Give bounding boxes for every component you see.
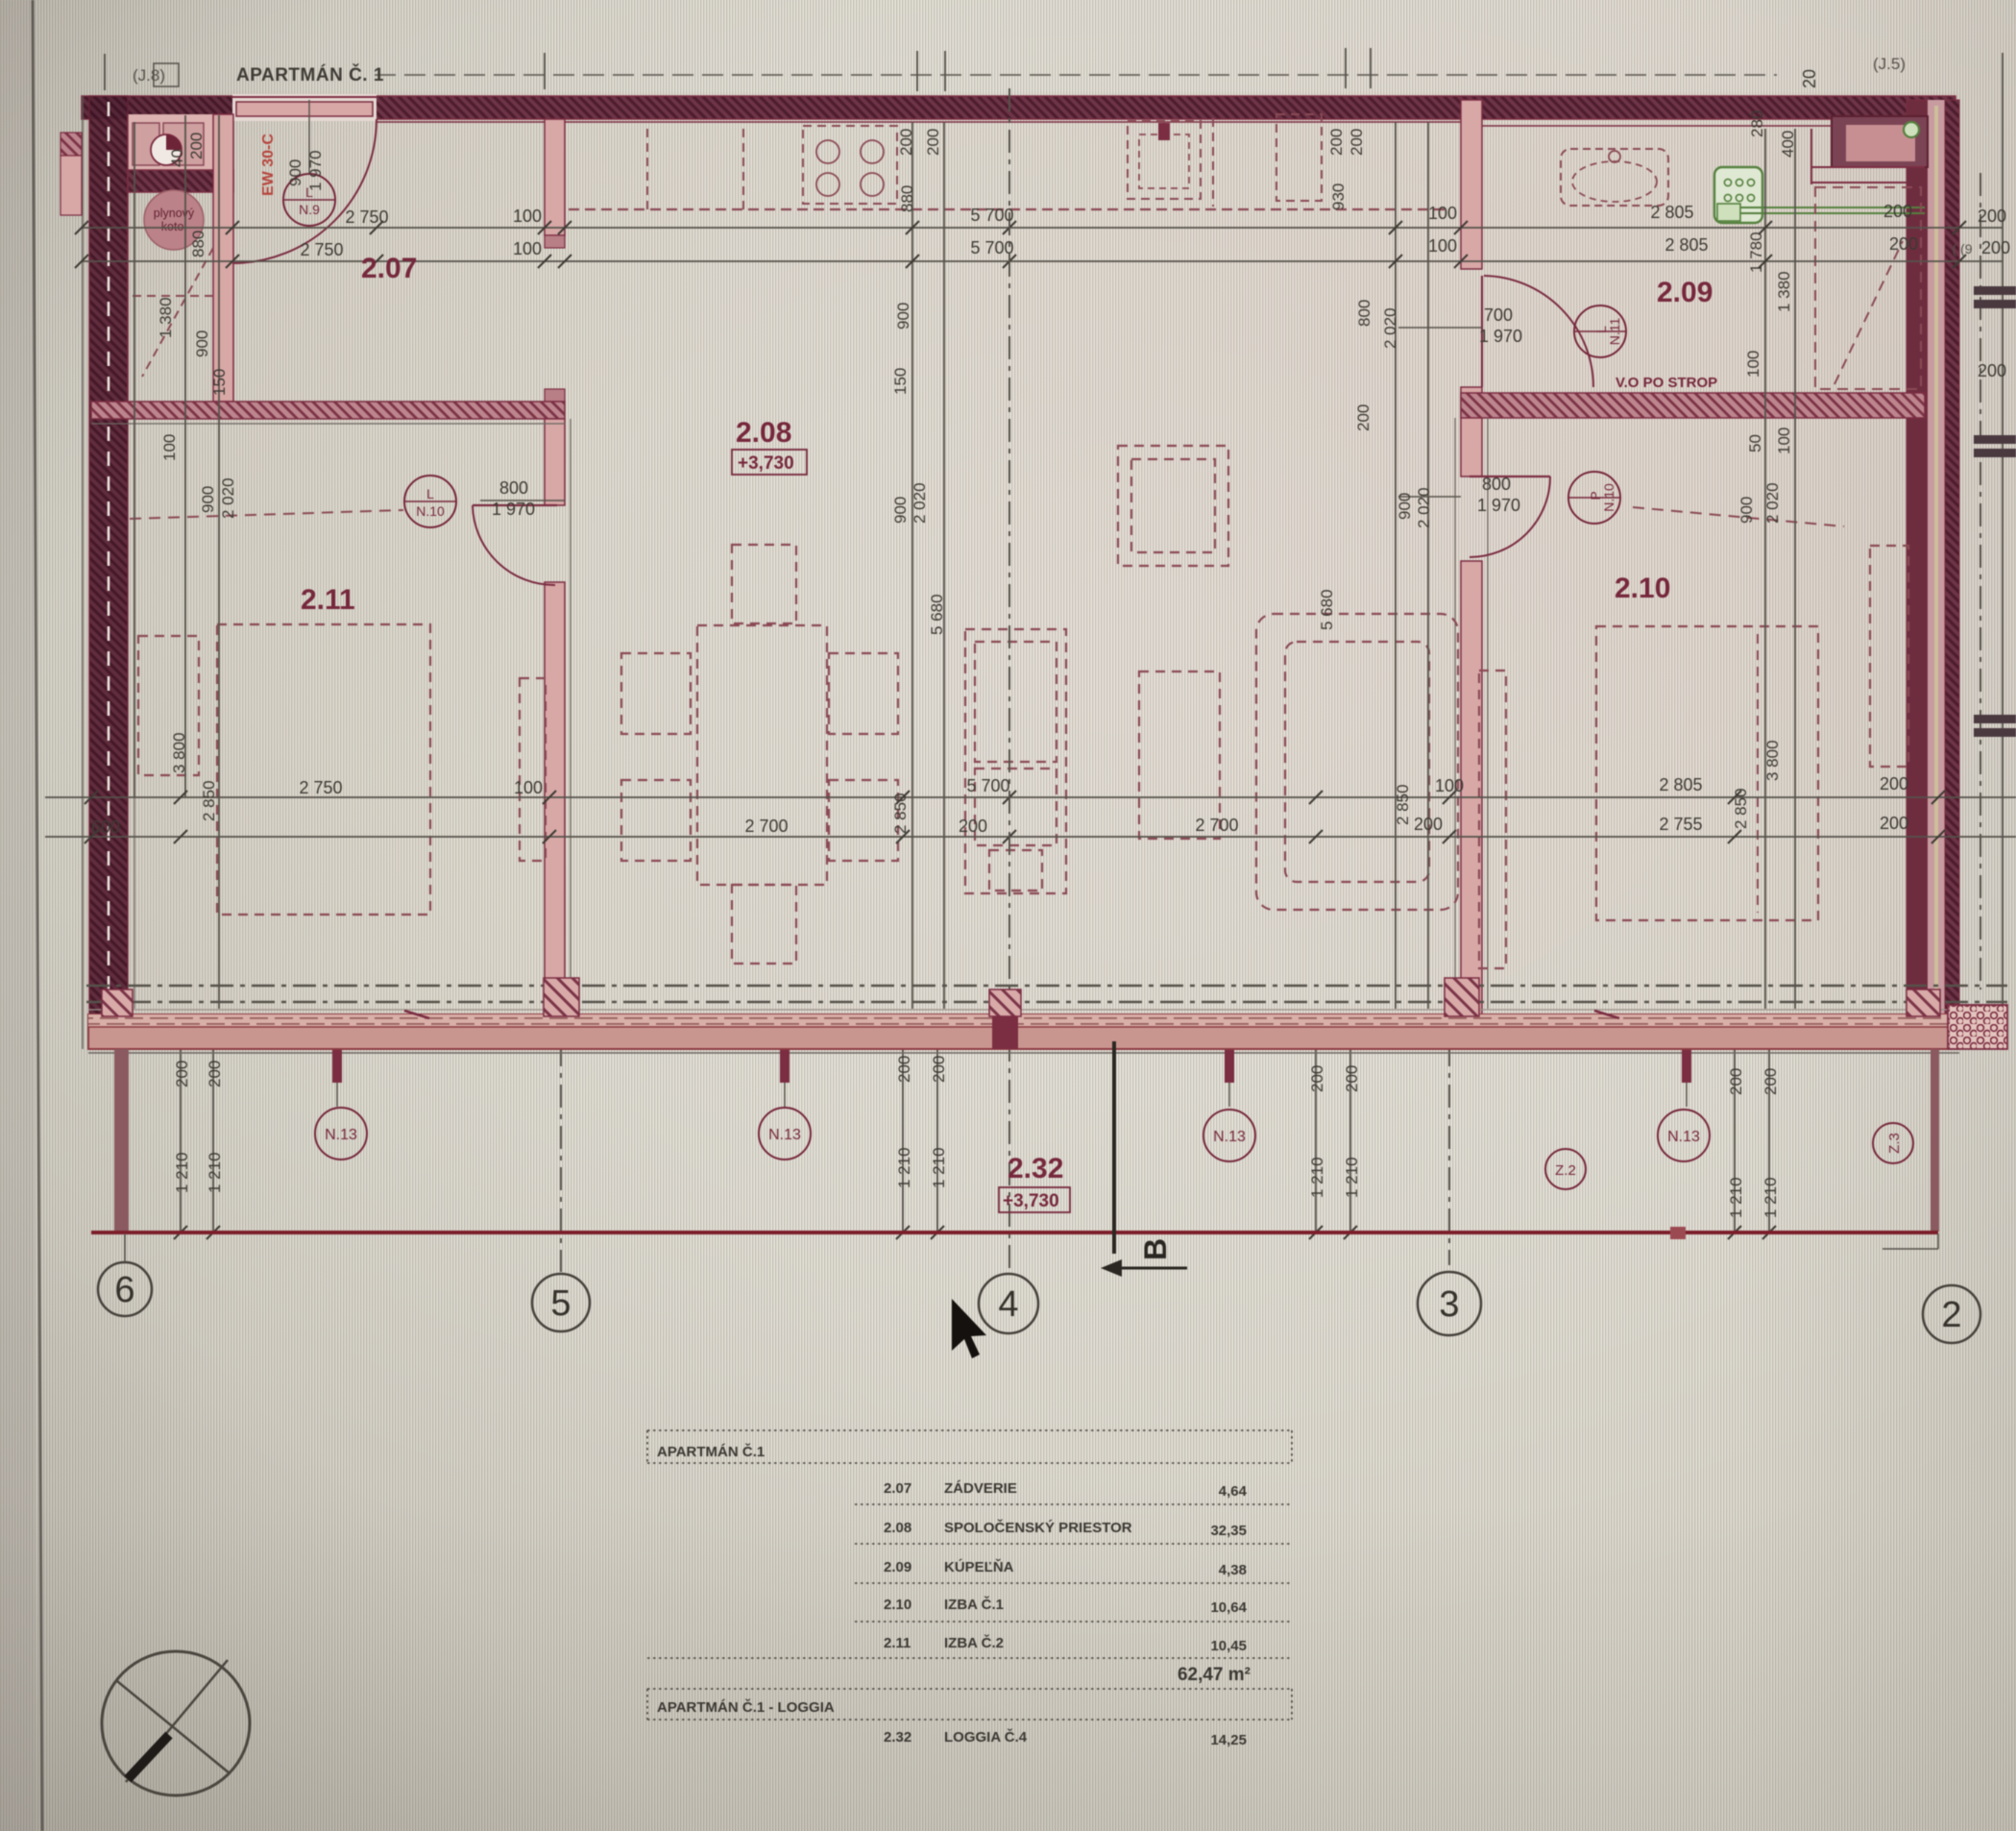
svg-text:200: 200 (1883, 202, 1912, 221)
svg-text:4,38: 4,38 (1219, 1562, 1247, 1578)
svg-text:1 210: 1 210 (206, 1152, 224, 1193)
svg-text:1 970: 1 970 (306, 150, 325, 191)
svg-text:100: 100 (1435, 776, 1464, 795)
svg-text:400: 400 (1779, 131, 1797, 158)
svg-text:2.11: 2.11 (301, 584, 355, 616)
svg-text:800: 800 (1355, 300, 1373, 327)
svg-text:IZBA Č.2: IZBA Č.2 (944, 1634, 1004, 1651)
svg-text:2 850: 2 850 (1732, 788, 1750, 829)
svg-text:10,64: 10,64 (1210, 1599, 1247, 1616)
svg-text:2 750: 2 750 (345, 208, 388, 227)
svg-text:L: L (426, 486, 434, 501)
svg-text:2 020: 2 020 (1381, 307, 1399, 349)
svg-text:880: 880 (898, 185, 916, 212)
svg-text:200: 200 (1327, 129, 1346, 156)
svg-text:plynový: plynový (154, 207, 195, 220)
svg-text:2: 2 (1941, 1295, 1961, 1335)
svg-text:2 020: 2 020 (1415, 487, 1433, 528)
svg-text:kotol: kotol (161, 220, 186, 233)
svg-text:3: 3 (1439, 1284, 1459, 1325)
svg-text:APARTMÁN Č. 1: APARTMÁN Č. 1 (236, 64, 384, 85)
svg-text:2 850: 2 850 (1394, 784, 1412, 825)
svg-text:B: B (1138, 1238, 1173, 1260)
svg-text:200: 200 (1348, 129, 1366, 156)
svg-text:2 805: 2 805 (1659, 775, 1702, 794)
svg-text:2 020: 2 020 (1763, 482, 1782, 524)
svg-text:200: 200 (1727, 1068, 1745, 1095)
svg-text:V.O PO STROP: V.O PO STROP (1615, 375, 1717, 391)
svg-text:2 805: 2 805 (1664, 235, 1708, 255)
svg-text:N.13: N.13 (1667, 1129, 1700, 1145)
svg-text:20: 20 (1800, 69, 1819, 88)
svg-text:200: 200 (1308, 1065, 1326, 1092)
svg-text:1 210: 1 210 (1308, 1157, 1326, 1198)
svg-text:800: 800 (499, 478, 528, 498)
svg-text:200: 200 (173, 1061, 191, 1087)
svg-text:1 380: 1 380 (1775, 271, 1793, 312)
svg-text:1 970: 1 970 (1479, 327, 1522, 346)
svg-text:N.13: N.13 (325, 1127, 357, 1143)
svg-text:50: 50 (1746, 434, 1764, 452)
svg-text:100: 100 (1428, 204, 1457, 223)
svg-text:1 210: 1 210 (895, 1147, 913, 1188)
svg-text:+3,730: +3,730 (1003, 1191, 1059, 1211)
svg-text:900: 900 (1396, 493, 1414, 520)
svg-text:10,45: 10,45 (1210, 1638, 1247, 1654)
svg-text:930: 930 (1329, 183, 1348, 210)
svg-text:+3,730: +3,730 (738, 453, 794, 474)
svg-text:2.07: 2.07 (884, 1480, 911, 1497)
svg-text:200: 200 (1414, 815, 1443, 834)
svg-text:N.13: N.13 (768, 1127, 801, 1143)
svg-text:900: 900 (199, 486, 217, 513)
svg-text:2.07: 2.07 (361, 253, 417, 284)
svg-text:5 700: 5 700 (970, 238, 1013, 257)
svg-text:700: 700 (1484, 305, 1513, 325)
svg-text:5: 5 (550, 1283, 571, 1324)
svg-text:4: 4 (998, 1284, 1018, 1325)
svg-text:2 020: 2 020 (219, 477, 237, 519)
svg-text:200: 200 (1354, 404, 1372, 431)
svg-text:200: 200 (187, 133, 206, 159)
svg-text:2.08: 2.08 (736, 417, 791, 449)
svg-text:APARTMÁN Č.1: APARTMÁN Č.1 (657, 1443, 765, 1460)
svg-text:100: 100 (513, 239, 542, 258)
svg-text:2.10: 2.10 (884, 1597, 911, 1613)
svg-text:N.10: N.10 (416, 503, 445, 519)
svg-text:1 210: 1 210 (1343, 1157, 1361, 1198)
svg-text:100: 100 (514, 778, 543, 797)
svg-text:4,64: 4,64 (1219, 1483, 1248, 1500)
svg-text:SPOLOČENSKÝ PRIESTOR: SPOLOČENSKÝ PRIESTOR (944, 1519, 1132, 1536)
svg-text:200: 200 (897, 129, 915, 156)
svg-text:2 805: 2 805 (1650, 203, 1693, 222)
svg-text:2 750: 2 750 (300, 240, 343, 259)
svg-text:(J.5): (J.5) (1873, 55, 1906, 73)
svg-text:2.32: 2.32 (884, 1729, 911, 1746)
svg-text:2 020: 2 020 (911, 482, 929, 524)
svg-text:880: 880 (189, 231, 207, 257)
svg-text:32,35: 32,35 (1210, 1523, 1247, 1539)
svg-text:200: 200 (1978, 361, 2006, 380)
svg-text:1 210: 1 210 (1727, 1177, 1745, 1218)
svg-text:280: 280 (1748, 110, 1766, 137)
svg-text:200: 200 (1761, 1068, 1780, 1095)
svg-text:KÚPEĽŇA: KÚPEĽŇA (944, 1558, 1014, 1575)
svg-text:200: 200 (1889, 234, 1918, 254)
svg-text:2.09: 2.09 (1657, 277, 1712, 308)
svg-text:1 210: 1 210 (173, 1152, 191, 1193)
svg-text:ZÁDVERIE: ZÁDVERIE (944, 1480, 1017, 1497)
svg-text:EW 30-C: EW 30-C (260, 134, 277, 196)
svg-text:62,47 m²: 62,47 m² (1178, 1665, 1251, 1685)
svg-text:14,25: 14,25 (1210, 1732, 1247, 1748)
svg-text:200: 200 (1978, 207, 2006, 226)
svg-text:LOGGIA Č.4: LOGGIA Č.4 (944, 1728, 1028, 1746)
svg-text:100: 100 (1775, 427, 1793, 454)
svg-text:200: 200 (1880, 774, 1908, 793)
svg-text:200: 200 (959, 817, 987, 836)
svg-text:6: 6 (114, 1270, 134, 1310)
svg-text:40: 40 (168, 149, 186, 167)
svg-text:5 700: 5 700 (966, 776, 1009, 795)
svg-text:2.09: 2.09 (884, 1559, 911, 1575)
svg-text:150: 150 (210, 369, 229, 396)
svg-text:APARTMÁN Č.1 - LOGGIA: APARTMÁN Č.1 - LOGGIA (657, 1698, 835, 1716)
svg-text:2.32: 2.32 (1008, 1153, 1063, 1184)
svg-text:( (9: ( (9 (1953, 241, 1973, 256)
svg-text:200: 200 (1981, 238, 2010, 257)
svg-text:200: 200 (924, 129, 942, 156)
svg-text:900: 900 (1737, 497, 1756, 524)
svg-text:2.11: 2.11 (884, 1635, 911, 1651)
svg-text:900: 900 (894, 303, 912, 330)
svg-text:200: 200 (1880, 814, 1908, 833)
svg-text:1 970: 1 970 (492, 500, 535, 519)
svg-text:(J.8): (J.8) (133, 66, 165, 85)
svg-text:5 700: 5 700 (970, 206, 1013, 225)
svg-text:IZBA Č.1: IZBA Č.1 (944, 1596, 1004, 1613)
svg-text:1 970: 1 970 (1477, 496, 1520, 515)
svg-text:2 755: 2 755 (1659, 815, 1702, 834)
svg-text:150: 150 (891, 368, 910, 395)
svg-text:800: 800 (1482, 475, 1511, 494)
svg-text:Z.2: Z.2 (1555, 1162, 1576, 1179)
svg-text:900: 900 (286, 159, 304, 186)
svg-text:1 210: 1 210 (930, 1147, 948, 1188)
svg-text:1 380: 1 380 (157, 297, 175, 338)
svg-text:200: 200 (206, 1061, 224, 1087)
svg-text:3 800: 3 800 (170, 732, 188, 773)
svg-text:200: 200 (895, 1056, 913, 1083)
svg-text:3 800: 3 800 (1763, 740, 1782, 781)
svg-text:2.10: 2.10 (1615, 573, 1670, 604)
svg-text:Z.3: Z.3 (1886, 1133, 1903, 1154)
svg-text:5 680: 5 680 (928, 594, 946, 635)
svg-text:2 850: 2 850 (891, 793, 910, 834)
svg-text:N.13: N.13 (1213, 1129, 1246, 1145)
svg-text:2 700: 2 700 (1195, 816, 1238, 835)
svg-text:200: 200 (1343, 1065, 1361, 1092)
svg-text:100: 100 (1428, 236, 1457, 256)
svg-text:1 780: 1 780 (1747, 232, 1765, 273)
svg-text:900: 900 (193, 330, 211, 357)
svg-text:2 850: 2 850 (200, 780, 218, 821)
svg-text:900: 900 (891, 497, 910, 524)
svg-text:100: 100 (513, 207, 542, 226)
svg-text:1 210: 1 210 (1761, 1177, 1780, 1218)
svg-text:2.08: 2.08 (884, 1520, 911, 1536)
svg-text:100: 100 (1744, 351, 1762, 378)
svg-text:5 680: 5 680 (1318, 589, 1336, 630)
svg-text:2 750: 2 750 (299, 778, 342, 797)
svg-text:600: 600 (91, 818, 120, 837)
svg-text:N.9: N.9 (299, 202, 320, 217)
svg-text:100: 100 (160, 434, 179, 461)
svg-text:200: 200 (930, 1056, 948, 1083)
svg-text:2 700: 2 700 (744, 817, 788, 836)
